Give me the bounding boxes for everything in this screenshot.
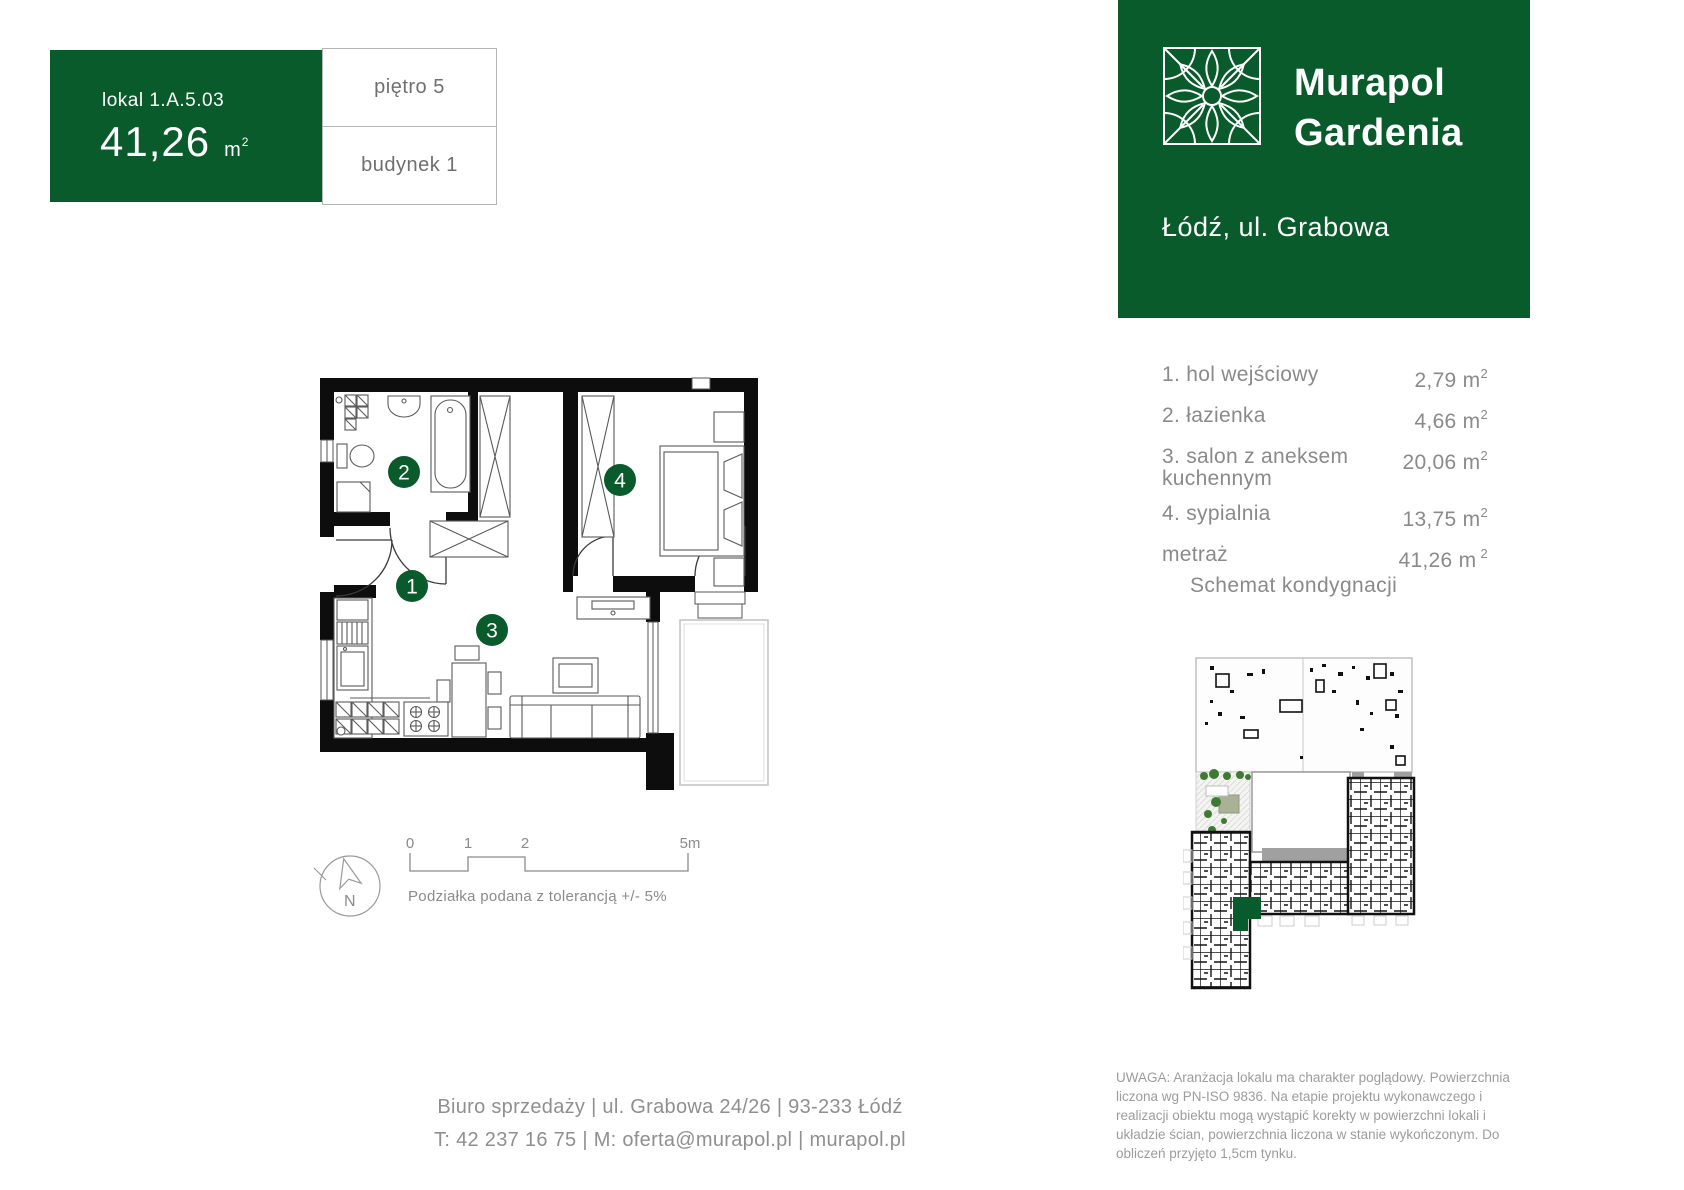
room-row: 3. salon z aneksem kuchennym 20,06 m2	[1162, 446, 1488, 490]
gardenia-flower-icon	[1162, 46, 1262, 150]
room-area: 13,75 m2	[1402, 503, 1488, 531]
brand-panel: Murapol Gardenia Łódź, ul. Grabowa	[1118, 0, 1530, 318]
svg-text:1: 1	[464, 838, 472, 852]
scale-bar-line	[410, 853, 688, 871]
compass-icon: N	[314, 856, 380, 916]
brand-name-line1: Murapol	[1294, 58, 1463, 108]
brand-name-line2: Gardenia	[1294, 108, 1463, 158]
svg-text:4: 4	[614, 470, 626, 493]
total-area-row: metraż 41,26 m2	[1162, 544, 1488, 572]
svg-text:1: 1	[406, 576, 418, 599]
brand-name: Murapol Gardenia	[1294, 58, 1463, 158]
room-row: 2. łazienka 4,66 m2	[1162, 405, 1488, 433]
total-area: 41,26 m2	[1398, 544, 1488, 572]
svg-text:2: 2	[398, 462, 410, 485]
unit-meta-cells: piętro 5 budynek 1	[322, 48, 497, 205]
room-area: 20,06 m2	[1402, 446, 1488, 490]
svg-text:2: 2	[521, 838, 529, 852]
patio-garden	[1196, 769, 1251, 834]
schematic-title: Schemat kondygnacji	[1190, 574, 1397, 598]
terrace-level	[1196, 658, 1412, 772]
building-level-schematic	[1183, 645, 1423, 995]
bath-cabinet	[337, 482, 370, 512]
svg-text:0: 0	[406, 838, 414, 852]
bathtub	[431, 396, 470, 492]
wardrobe	[430, 521, 508, 557]
sales-office-contact: Biuro sprzedaży | ul. Grabowa 24/26 | 93…	[420, 1091, 920, 1157]
room-label: 1. hol wejściowy	[1162, 364, 1319, 392]
building-cell: budynek 1	[323, 127, 496, 205]
floor-cell: piętro 5	[323, 49, 496, 127]
room-list: 1. hol wejściowy 2,79 m2 2. łazienka 4,6…	[1162, 364, 1488, 585]
courtyard	[1252, 772, 1350, 852]
contact-line2: T: 42 237 16 75 | M: oferta@murapol.pl |…	[420, 1124, 920, 1157]
wardrobe	[582, 396, 614, 537]
scale-bar-labels: 0 1 2 5m	[406, 838, 700, 852]
room-area: 2,79 m2	[1414, 364, 1488, 392]
scale-tolerance-note: Podziałka podana z tolerancją +/- 5%	[408, 888, 667, 905]
unit-area-value: 41,26	[100, 118, 210, 165]
armchair	[553, 658, 598, 693]
toilet	[337, 444, 374, 468]
fixtures	[334, 395, 744, 738]
highlighted-unit-marker	[1233, 897, 1261, 931]
svg-text:5m: 5m	[680, 838, 700, 852]
total-label: metraż	[1162, 544, 1228, 572]
unit-id: lokal 1.A.5.03	[102, 90, 224, 112]
room-row: 1. hol wejściowy 2,79 m2	[1162, 364, 1488, 392]
washbasin	[388, 396, 420, 417]
unit-card: lokal 1.A.5.03 41,26m2	[50, 50, 322, 202]
unit-area: 41,26m2	[100, 118, 249, 166]
room-area: 4,66 m2	[1414, 405, 1488, 433]
nightstand	[714, 558, 744, 586]
washer-grid	[345, 395, 368, 430]
svg-text:3: 3	[486, 620, 498, 643]
kitchen-cabinets	[336, 702, 399, 735]
tv-console	[577, 597, 650, 619]
bed	[660, 446, 744, 556]
contact-line1: Biuro sprzedaży | ul. Grabowa 24/26 | 93…	[420, 1091, 920, 1124]
brand-address: Łódź, ul. Grabowa	[1162, 212, 1390, 243]
scale-bar: N 0 1 2 5m	[280, 838, 700, 920]
room-label: 4. sypialnia	[1162, 503, 1271, 531]
disclaimer-note: UWAGA: Aranżacja lokalu ma charakter pog…	[1116, 1068, 1514, 1163]
balcony	[680, 620, 768, 785]
svg-text:N: N	[344, 893, 356, 910]
room-label: 2. łazienka	[1162, 405, 1266, 433]
offer-sheet: lokal 1.A.5.03 41,26m2 piętro 5 budynek …	[0, 0, 1684, 1190]
room-label: 3. salon z aneksem kuchennym	[1162, 446, 1402, 490]
floor-plan: 1 2 3 4	[295, 350, 805, 795]
nightstand	[714, 412, 744, 442]
wardrobe	[480, 396, 510, 517]
room-row: 4. sypialnia 13,75 m2	[1162, 503, 1488, 531]
sofa	[510, 696, 640, 738]
